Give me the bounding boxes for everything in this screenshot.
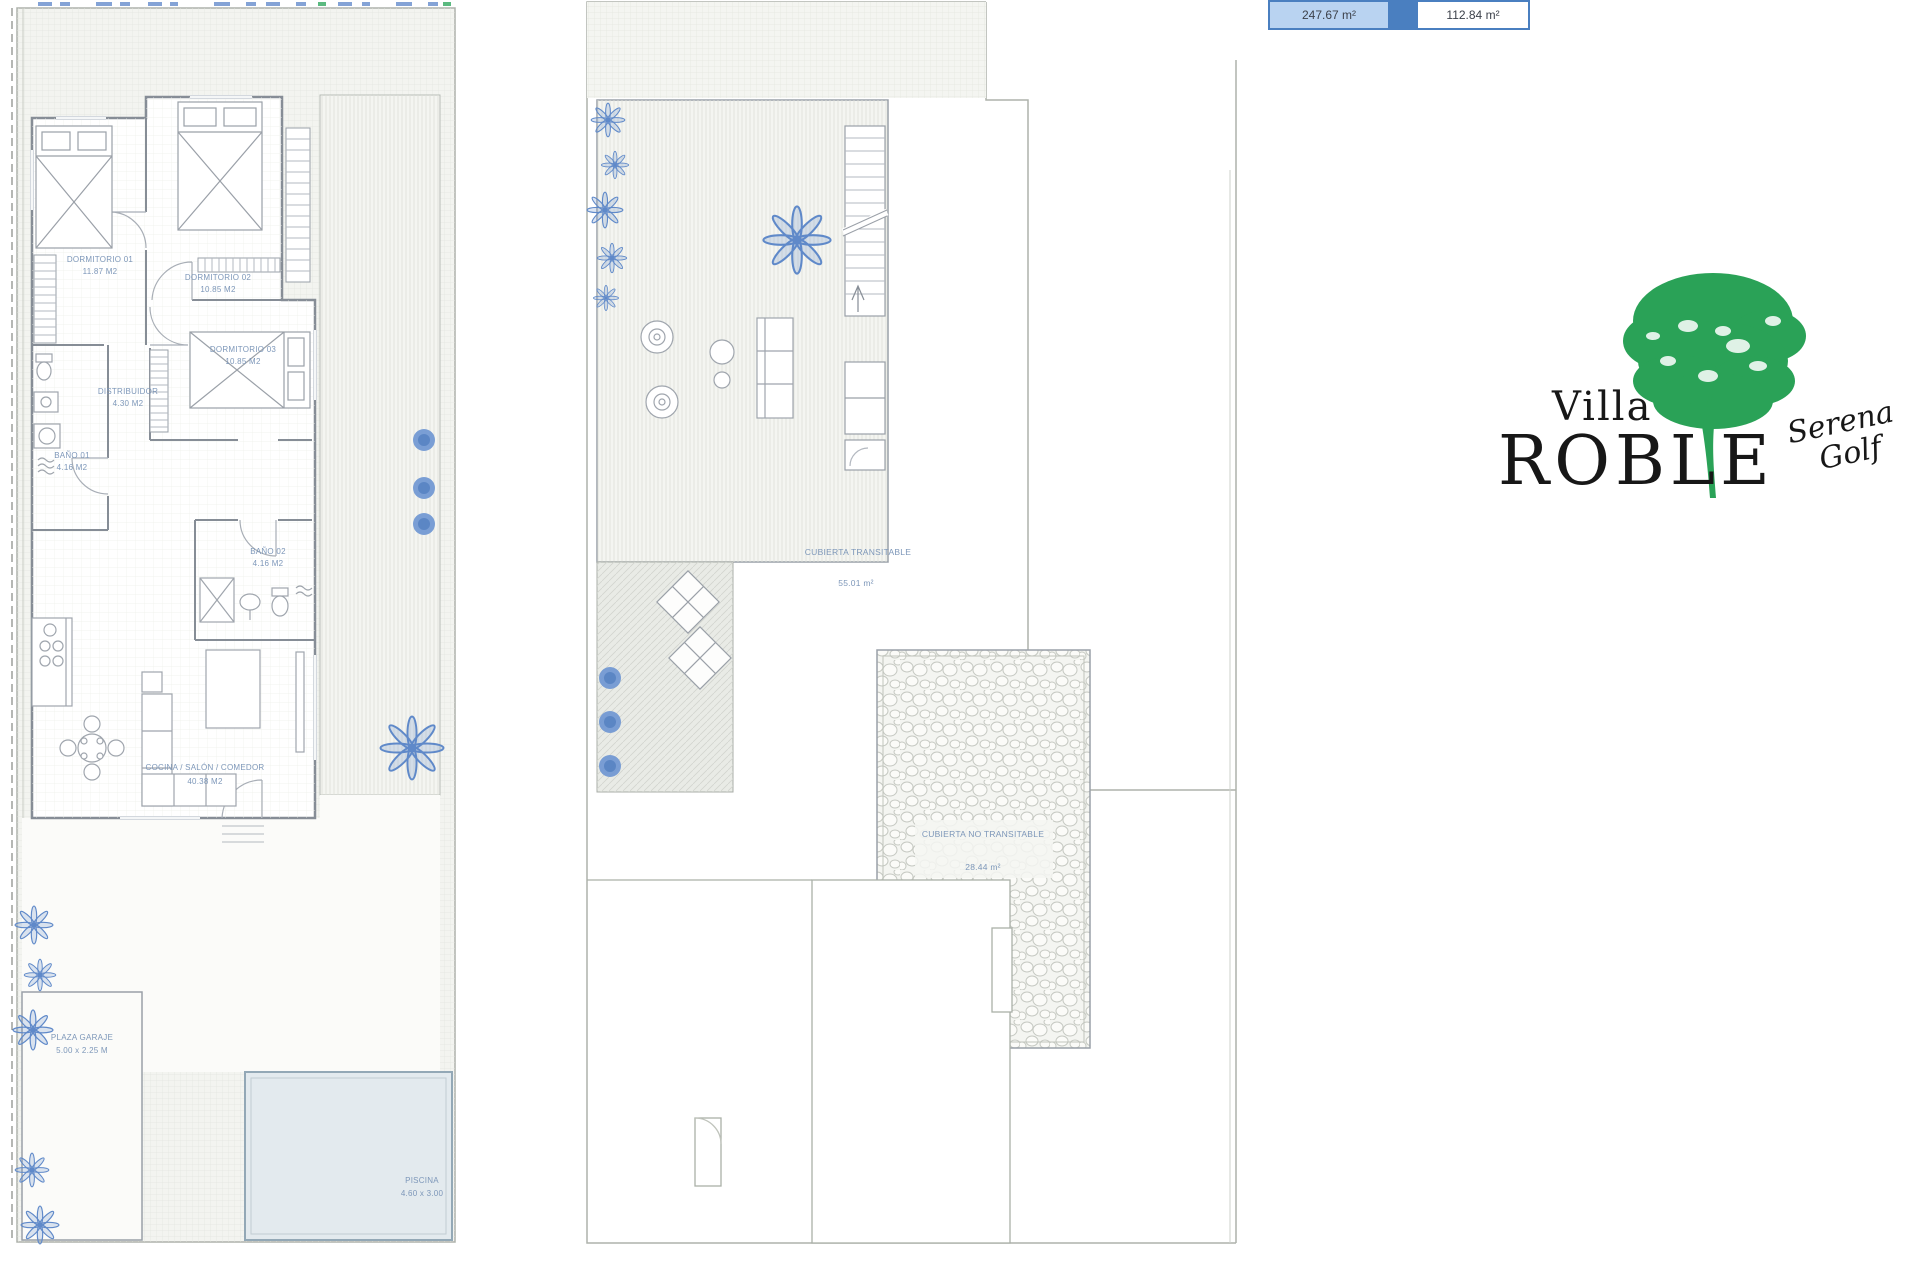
floor-plans-drawing: DORMITORIO 01 11.87 M2 DORMITORIO 02 10.… [0,0,1920,1280]
roof-plan: CUBIERTA TRANSITABLE 55.01 m² CUBIERTA N… [587,2,1236,1243]
room-area: 4.30 M2 [113,399,144,408]
roof-core [845,362,885,470]
lower-structures [587,880,1012,1243]
room-area: 40.38 M2 [187,777,223,786]
room-label: DORMITORIO 01 [67,255,134,264]
area-table-divider [1388,2,1418,28]
roof-terrace-area: 55.01 m² [838,578,874,588]
dimension-marks [38,2,451,6]
roof-terrace-label: CUBIERTA TRANSITABLE [805,547,911,557]
kitchen-fixtures [32,618,72,706]
room-area: 11.87 M2 [83,267,118,276]
room-area: 4.16 M2 [253,559,284,568]
area-cell-built: 112.84 m² [1418,2,1528,28]
room-label: BAÑO 01 [54,451,90,460]
sun-deck [597,562,733,792]
room-area: 10.85 M2 [225,357,261,366]
bed-dormitorio-02 [178,102,262,230]
room-area: 4.16 M2 [57,463,88,472]
logo-roble-text: ROBLE [1498,422,1775,501]
garage-label: PLAZA GARAJE [51,1033,113,1042]
pebble-roof-label: CUBIERTA NO TRANSITABLE [922,829,1044,839]
pool-label: PISCINA [405,1176,439,1185]
area-value: 247.67 m² [1302,8,1356,22]
room-label: DORMITORIO 02 [185,273,252,282]
pool-size: 4.60 x 3.00 [401,1189,444,1198]
villa-roble-logo: Villa ROBLE Serena Golf [1490,258,1920,548]
area-value: 112.84 m² [1446,8,1499,22]
ground-floor-plan: DORMITORIO 01 11.87 M2 DORMITORIO 02 10.… [12,2,455,1244]
pebble-roof-area: 28.44 m² [965,862,1001,872]
pool [245,1072,452,1240]
room-label: BAÑO 02 [250,547,286,556]
area-cell-total: 247.67 m² [1270,2,1388,28]
area-summary-table: 247.67 m² 112.84 m² [1268,0,1530,30]
room-label: DORMITORIO 03 [210,345,277,354]
room-area: 10.85 M2 [200,285,236,294]
room-label: COCINA / SALÓN / COMEDOR [146,763,265,772]
garage-size: 5.00 x 2.25 M [56,1046,108,1055]
terrace-planters [413,429,435,535]
stairs [843,126,887,316]
room-label: DISTRIBUIDOR [98,387,158,396]
bed-dormitorio-01 [36,126,112,248]
bed-dormitorio-03 [190,332,310,408]
